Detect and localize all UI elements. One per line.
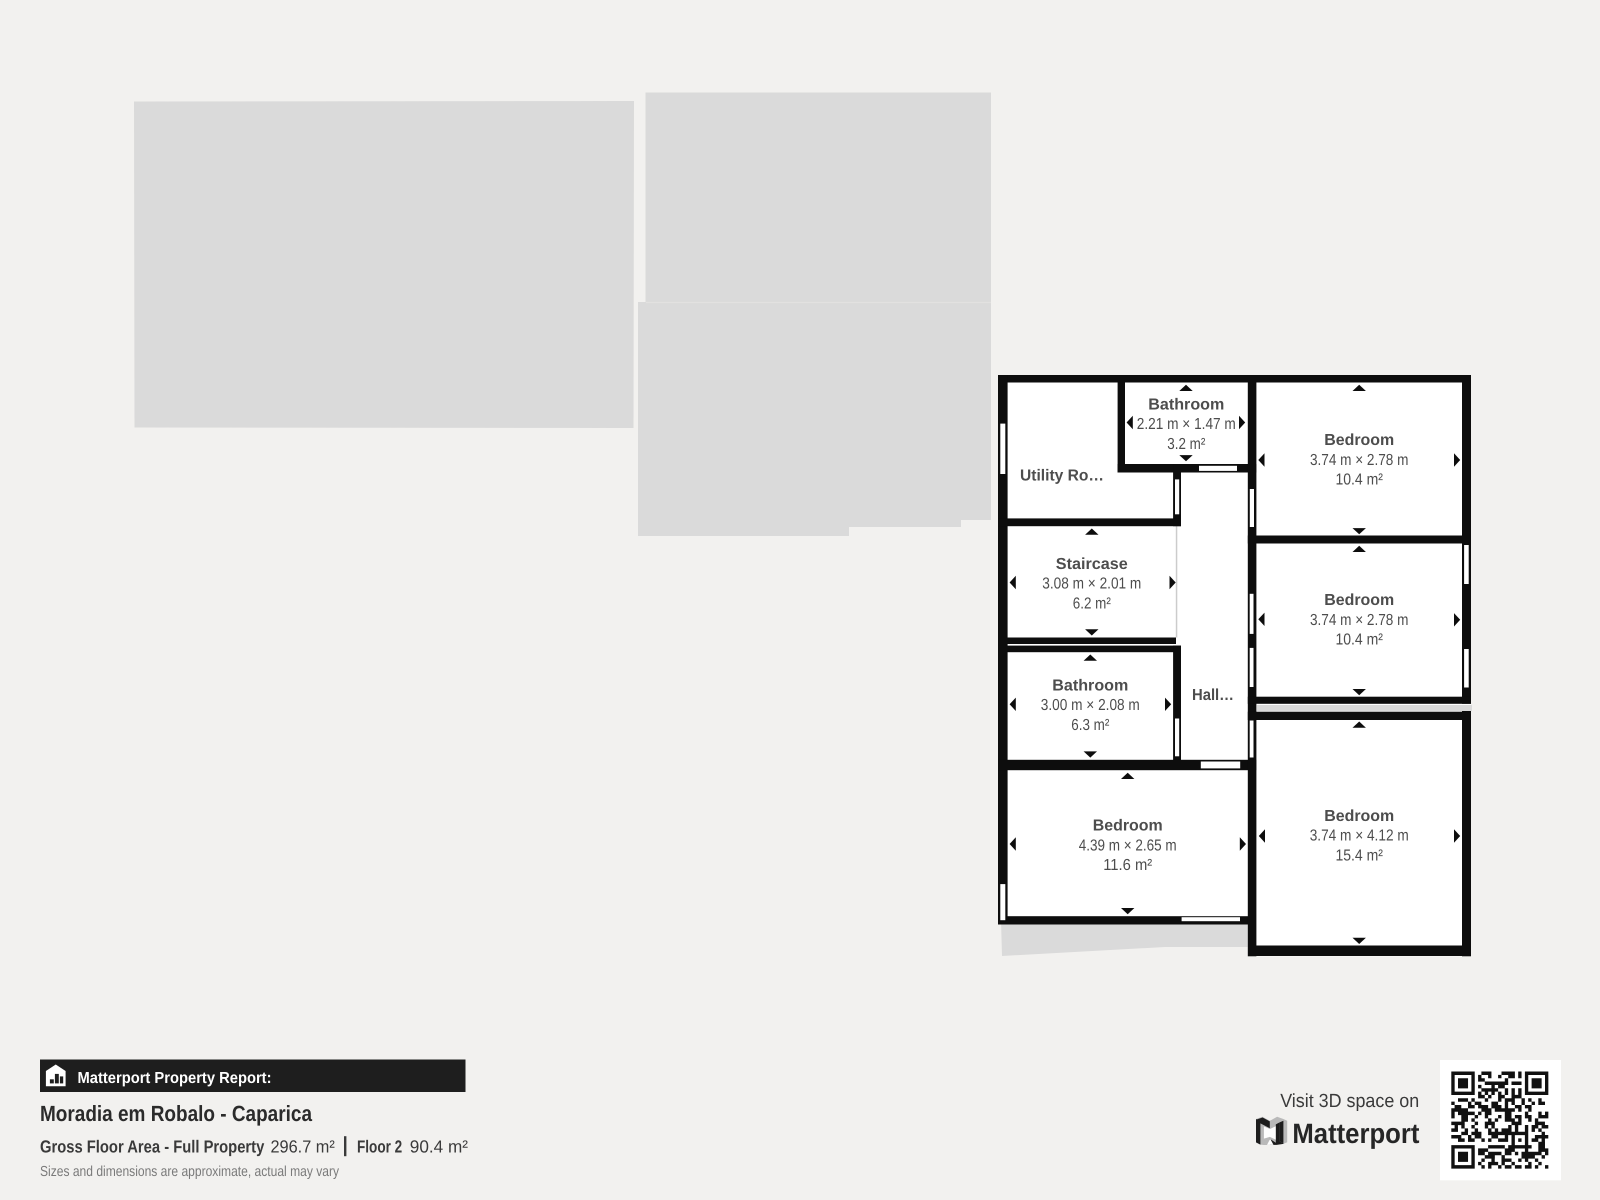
svg-text:4.39 m × 2.65 m: 4.39 m × 2.65 m (1079, 837, 1177, 854)
svg-text:2.21 m × 1.47 m: 2.21 m × 1.47 m (1137, 416, 1236, 433)
svg-text:Bedroom: Bedroom (1324, 592, 1394, 609)
svg-text:Bedroom: Bedroom (1324, 432, 1394, 449)
svg-text:Gross Floor Area - Full Proper: Gross Floor Area - Full Property (40, 1137, 265, 1157)
svg-text:6.2 m²: 6.2 m² (1073, 595, 1112, 612)
svg-text:Staircase: Staircase (1056, 556, 1128, 573)
svg-text:3.00 m × 2.08 m: 3.00 m × 2.08 m (1041, 697, 1140, 714)
svg-text:Bedroom: Bedroom (1324, 808, 1394, 825)
svg-text:3.74 m × 2.78 m: 3.74 m × 2.78 m (1310, 612, 1409, 629)
svg-text:10.4 m²: 10.4 m² (1335, 472, 1383, 489)
svg-text:Hall…: Hall… (1192, 687, 1234, 704)
svg-text:Floor 2: Floor 2 (357, 1137, 402, 1157)
svg-text:Visit 3D space on: Visit 3D space on (1280, 1091, 1419, 1112)
svg-text:Bathroom: Bathroom (1148, 396, 1224, 413)
svg-text:Utility Ro…: Utility Ro… (1020, 468, 1104, 485)
svg-text:Moradia em Robalo - Caparica: Moradia em Robalo - Caparica (40, 1101, 313, 1126)
svg-text:11.6 m²: 11.6 m² (1103, 857, 1153, 874)
svg-text:296.7 m²: 296.7 m² (271, 1137, 335, 1157)
svg-text:3.2 m²: 3.2 m² (1167, 436, 1206, 453)
svg-text:90.4 m²: 90.4 m² (410, 1137, 468, 1157)
svg-text:15.4 m²: 15.4 m² (1335, 847, 1383, 864)
svg-text:Matterport Property Report:: Matterport Property Report: (78, 1070, 272, 1087)
svg-text:3.08 m × 2.01 m: 3.08 m × 2.01 m (1042, 576, 1141, 593)
svg-text:Sizes and dimensions are appro: Sizes and dimensions are approximate, ac… (40, 1164, 340, 1180)
svg-text:3.74 m × 2.78 m: 3.74 m × 2.78 m (1310, 452, 1409, 469)
svg-text:Bedroom: Bedroom (1093, 818, 1163, 835)
svg-text:10.4 m²: 10.4 m² (1335, 632, 1383, 649)
svg-text:6.3 m²: 6.3 m² (1071, 717, 1110, 734)
svg-text:Matterport: Matterport (1292, 1118, 1419, 1149)
svg-text:3.74 m × 4.12 m: 3.74 m × 4.12 m (1310, 828, 1409, 845)
svg-text:Bathroom: Bathroom (1052, 677, 1128, 694)
